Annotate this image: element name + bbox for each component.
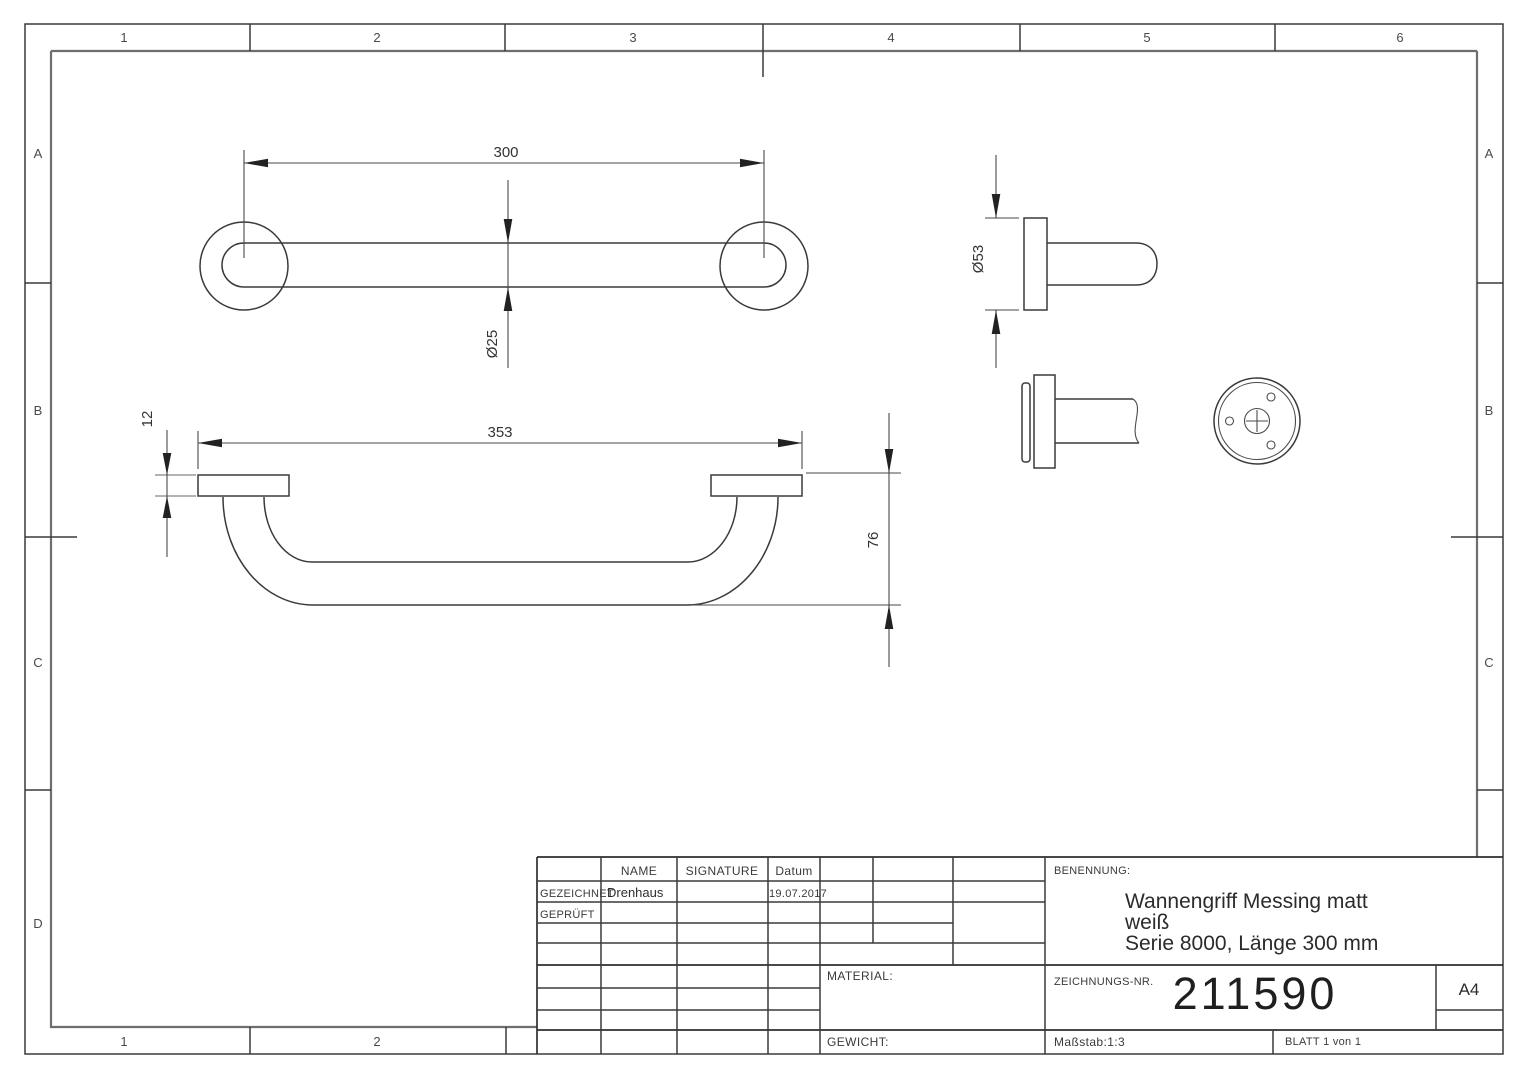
zone-bottom-1: 1 <box>120 1034 127 1049</box>
dim-flange-dia-53: Ø53 <box>970 155 1019 368</box>
dim-300-label: 300 <box>493 144 518 161</box>
screw-hole-bottom <box>1267 441 1275 449</box>
zone-top-1: 1 <box>120 30 127 45</box>
drawing-number-label: ZEICHNUNGS-NR. <box>1054 976 1154 988</box>
dim-300-extension-lines <box>244 150 764 258</box>
dim-tube-dia-25: Ø25 <box>484 180 512 368</box>
dim-12-arrow-top <box>163 453 172 475</box>
title-block: NAME SIGNATURE Datum GEZEICHNET Drenhaus… <box>537 857 1503 1054</box>
flange-body <box>1034 375 1055 468</box>
dim-53-arrow-top <box>992 194 1001 218</box>
left-flange-plate <box>198 475 289 496</box>
zone-top-6: 6 <box>1396 30 1403 45</box>
bow-inner-contour <box>264 497 737 562</box>
dim-76-arrow-bottom <box>885 605 894 629</box>
view-flange-face <box>1214 378 1300 464</box>
view-grabbar-plan <box>200 222 808 310</box>
title-block-outline <box>537 857 1503 1054</box>
dim-12-arrow-bottom <box>163 496 172 518</box>
paper-format: A4 <box>1459 980 1480 999</box>
benennung-label: BENENNUNG: <box>1054 865 1130 877</box>
dim-flange-thickness-12: 12 <box>139 411 196 557</box>
sheet-count-label: BLATT 1 von 1 <box>1285 1036 1361 1048</box>
dim-53-extension-lines <box>985 218 1019 310</box>
dim-300-arrow-left <box>244 159 268 168</box>
view-flange-side <box>1024 218 1157 310</box>
zone-left-c: C <box>33 655 42 670</box>
phillips-cross-icon <box>1246 410 1268 432</box>
flange-side-stub <box>1047 243 1157 285</box>
bow-outer-contour <box>223 497 778 605</box>
zone-top-5: 5 <box>1143 30 1150 45</box>
dim-53-label: Ø53 <box>970 245 987 273</box>
drawn-name: Drenhaus <box>607 885 664 900</box>
dim-length-300: 300 <box>244 144 764 258</box>
view-flange-broken-tube <box>1022 375 1139 468</box>
dim-76-label: 76 <box>865 532 882 549</box>
drawn-date: 19.07.2017 <box>769 888 827 900</box>
dim-overall-353: 353 <box>198 424 802 469</box>
dim-353-arrow-left <box>198 439 222 448</box>
zone-right-c: C <box>1484 655 1493 670</box>
view-grabbar-front <box>198 475 802 605</box>
zone-left-a: A <box>34 146 43 161</box>
dim-height-76: 76 <box>691 413 901 667</box>
right-flange-plate <box>711 475 802 496</box>
zone-top-4: 4 <box>887 30 894 45</box>
weight-label: GEWICHT: <box>827 1035 889 1049</box>
zone-left-d: D <box>33 916 42 931</box>
cad-drawing: 1 2 3 4 5 6 1 2 A B C D A B C 300 Ø25 <box>0 0 1528 1080</box>
header-date: Datum <box>775 864 812 878</box>
zone-right-a: A <box>1485 146 1494 161</box>
dim-353-arrow-right <box>778 439 802 448</box>
zone-top-2: 2 <box>373 30 380 45</box>
screw-hole-top <box>1267 393 1275 401</box>
drawing-number: 211590 <box>1173 968 1338 1019</box>
scale-label: Maßstab:1:3 <box>1054 1035 1125 1049</box>
material-label: MATERIAL: <box>827 969 893 983</box>
header-signature: SIGNATURE <box>686 864 759 878</box>
wall-rosette-plate <box>1022 383 1030 462</box>
tube-outline <box>222 243 786 287</box>
dim-53-arrow-bottom <box>992 310 1001 334</box>
zone-left-b: B <box>34 403 43 418</box>
zone-bottom-2: 2 <box>373 1034 380 1049</box>
part-title-line3: Serie 8000, Länge 300 mm <box>1125 932 1378 955</box>
header-name: NAME <box>621 864 657 878</box>
dim-25-arrow-bottom <box>504 287 513 311</box>
dim-353-label: 353 <box>487 424 512 441</box>
tube-break-line <box>1133 399 1139 443</box>
dim-25-label: Ø25 <box>484 330 501 358</box>
dim-12-extension-lines <box>155 475 196 496</box>
part-title-line2: weiß <box>1124 911 1169 934</box>
dim-76-arrow-top <box>885 449 894 473</box>
screw-hole-left <box>1226 417 1234 425</box>
flange-side-plate <box>1024 218 1047 310</box>
tube-edges <box>1055 399 1139 443</box>
zone-right-b: B <box>1485 403 1494 418</box>
zone-top-3: 3 <box>629 30 636 45</box>
dim-12-label: 12 <box>139 411 156 428</box>
dim-300-arrow-right <box>740 159 764 168</box>
title-block-verticals <box>601 857 1436 1054</box>
drawing-sheet: 1 2 3 4 5 6 1 2 A B C D A B C 300 Ø25 <box>0 0 1528 1080</box>
drawn-label: GEZEICHNET <box>540 888 614 900</box>
dim-25-arrow-top <box>504 219 513 243</box>
part-title-line1: Wannengriff Messing matt <box>1125 890 1368 913</box>
checked-label: GEPRÜFT <box>540 909 595 921</box>
